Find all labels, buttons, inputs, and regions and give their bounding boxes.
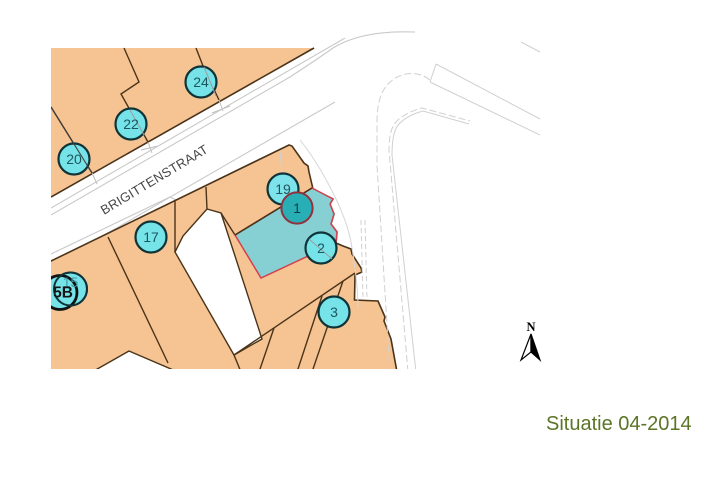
svg-text:1: 1 [293, 200, 301, 216]
svg-text:Situatie 04-2014: Situatie 04-2014 [546, 413, 692, 435]
svg-text:2: 2 [317, 240, 325, 256]
svg-text:22: 22 [123, 116, 139, 132]
svg-text:17: 17 [143, 229, 159, 245]
svg-text:20: 20 [66, 151, 82, 167]
svg-text:N: N [526, 320, 535, 334]
svg-text:5B: 5B [53, 285, 73, 302]
svg-text:3: 3 [330, 304, 338, 320]
svg-text:24: 24 [193, 74, 209, 90]
